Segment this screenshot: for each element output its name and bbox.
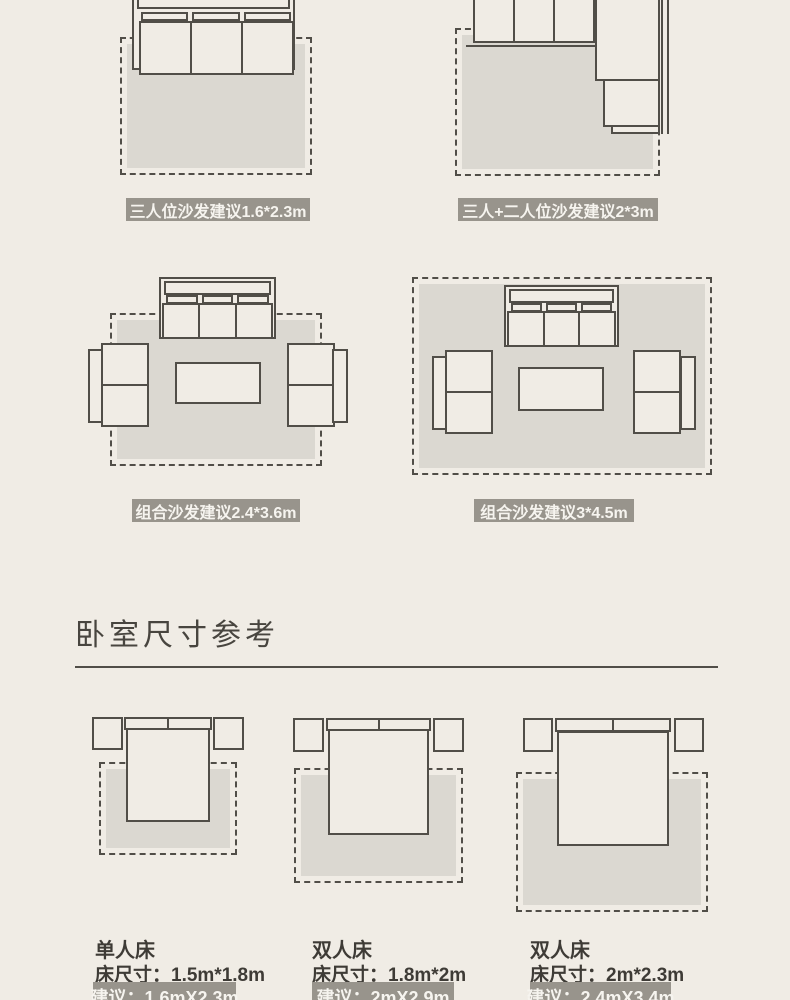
bed-type-label: 单人床	[95, 934, 155, 963]
loveseat-left-seats	[101, 343, 149, 427]
size-guide-infographic: 三人位沙发建议1.6*2.3m 三人+二人位沙发建议2*3m	[0, 0, 790, 1000]
seat-cushion	[543, 313, 579, 345]
pillow	[167, 719, 210, 728]
seat-cushion	[190, 23, 241, 73]
seat-cushion	[103, 384, 147, 425]
suggestion-badge: 建议：2mX2.9m	[312, 982, 454, 1000]
seat-cushion	[198, 305, 234, 337]
size-badge: 组合沙发建议2.4*3.6m	[132, 499, 300, 522]
chaise-foot	[611, 125, 660, 134]
sofa-back-strip	[141, 12, 291, 21]
sofa-seats	[139, 21, 294, 75]
loveseat-right-back	[680, 356, 696, 430]
seat-cushion	[513, 0, 553, 41]
nightstand-left	[92, 717, 123, 750]
seat-cushion	[475, 0, 513, 41]
seat-cushion	[164, 305, 198, 337]
headboard-pillows	[555, 718, 671, 732]
back-cushion-cell	[192, 12, 239, 21]
pillow	[328, 720, 378, 729]
loveseat-right-seats	[287, 343, 335, 427]
section-divider	[75, 666, 718, 668]
chaise-seat	[603, 79, 660, 127]
sofa-armrest	[661, 0, 669, 134]
sofa-seats	[473, 0, 595, 43]
size-badge: 三人+二人位沙发建议2*3m	[458, 198, 658, 221]
bed-body	[557, 731, 669, 846]
seat-cushion	[509, 313, 543, 345]
sofa-back-cushion	[509, 289, 614, 303]
size-badge: 组合沙发建议3*4.5m	[474, 499, 634, 522]
nightstand-right	[674, 718, 704, 752]
sofa-corner-section	[595, 0, 660, 81]
seat-cushion	[241, 23, 292, 73]
seat-cushion	[289, 345, 333, 384]
pillow	[126, 719, 167, 728]
seat-cushion	[289, 384, 333, 425]
nightstand-left	[293, 718, 324, 752]
sofa-seats	[507, 311, 616, 347]
seat-cushion	[141, 23, 190, 73]
bed-type-label: 双人床	[312, 934, 372, 963]
seat-cushion	[553, 0, 593, 41]
sofa-seats	[162, 303, 273, 339]
suggestion-badge: 建议：2.4mX3.4m	[530, 982, 671, 1000]
seat-cushion	[103, 345, 147, 384]
seat-cushion	[235, 305, 271, 337]
loveseat-right-back	[332, 349, 348, 423]
loveseat-right-seats	[633, 350, 681, 434]
back-cushion-cell	[141, 12, 188, 21]
seat-cushion	[447, 352, 491, 391]
sofa-back-cushion	[137, 0, 290, 9]
seat-cushion	[447, 391, 491, 432]
seat-cushion	[635, 352, 679, 391]
suggestion-badge: 建议：1.6mX2.3m	[93, 982, 236, 1000]
coffee-table	[175, 362, 261, 404]
nightstand-right	[213, 717, 244, 750]
bed-body	[126, 728, 210, 822]
sofa-back-cushion	[164, 281, 271, 295]
loveseat-left-seats	[445, 350, 493, 434]
nightstand-left	[523, 718, 553, 752]
nightstand-right	[433, 718, 464, 752]
back-cushion-cell	[244, 12, 291, 21]
pillow	[612, 720, 669, 730]
pillow	[378, 720, 430, 729]
seat-cushion	[635, 391, 679, 432]
sofa-front-edge	[466, 45, 597, 47]
bed-body	[328, 729, 429, 835]
seat-cushion	[578, 313, 614, 345]
pillow	[557, 720, 612, 730]
section-heading: 卧室尺寸参考	[75, 610, 279, 654]
bed-type-label: 双人床	[530, 934, 590, 963]
size-badge: 三人位沙发建议1.6*2.3m	[126, 198, 310, 221]
coffee-table	[518, 367, 604, 411]
